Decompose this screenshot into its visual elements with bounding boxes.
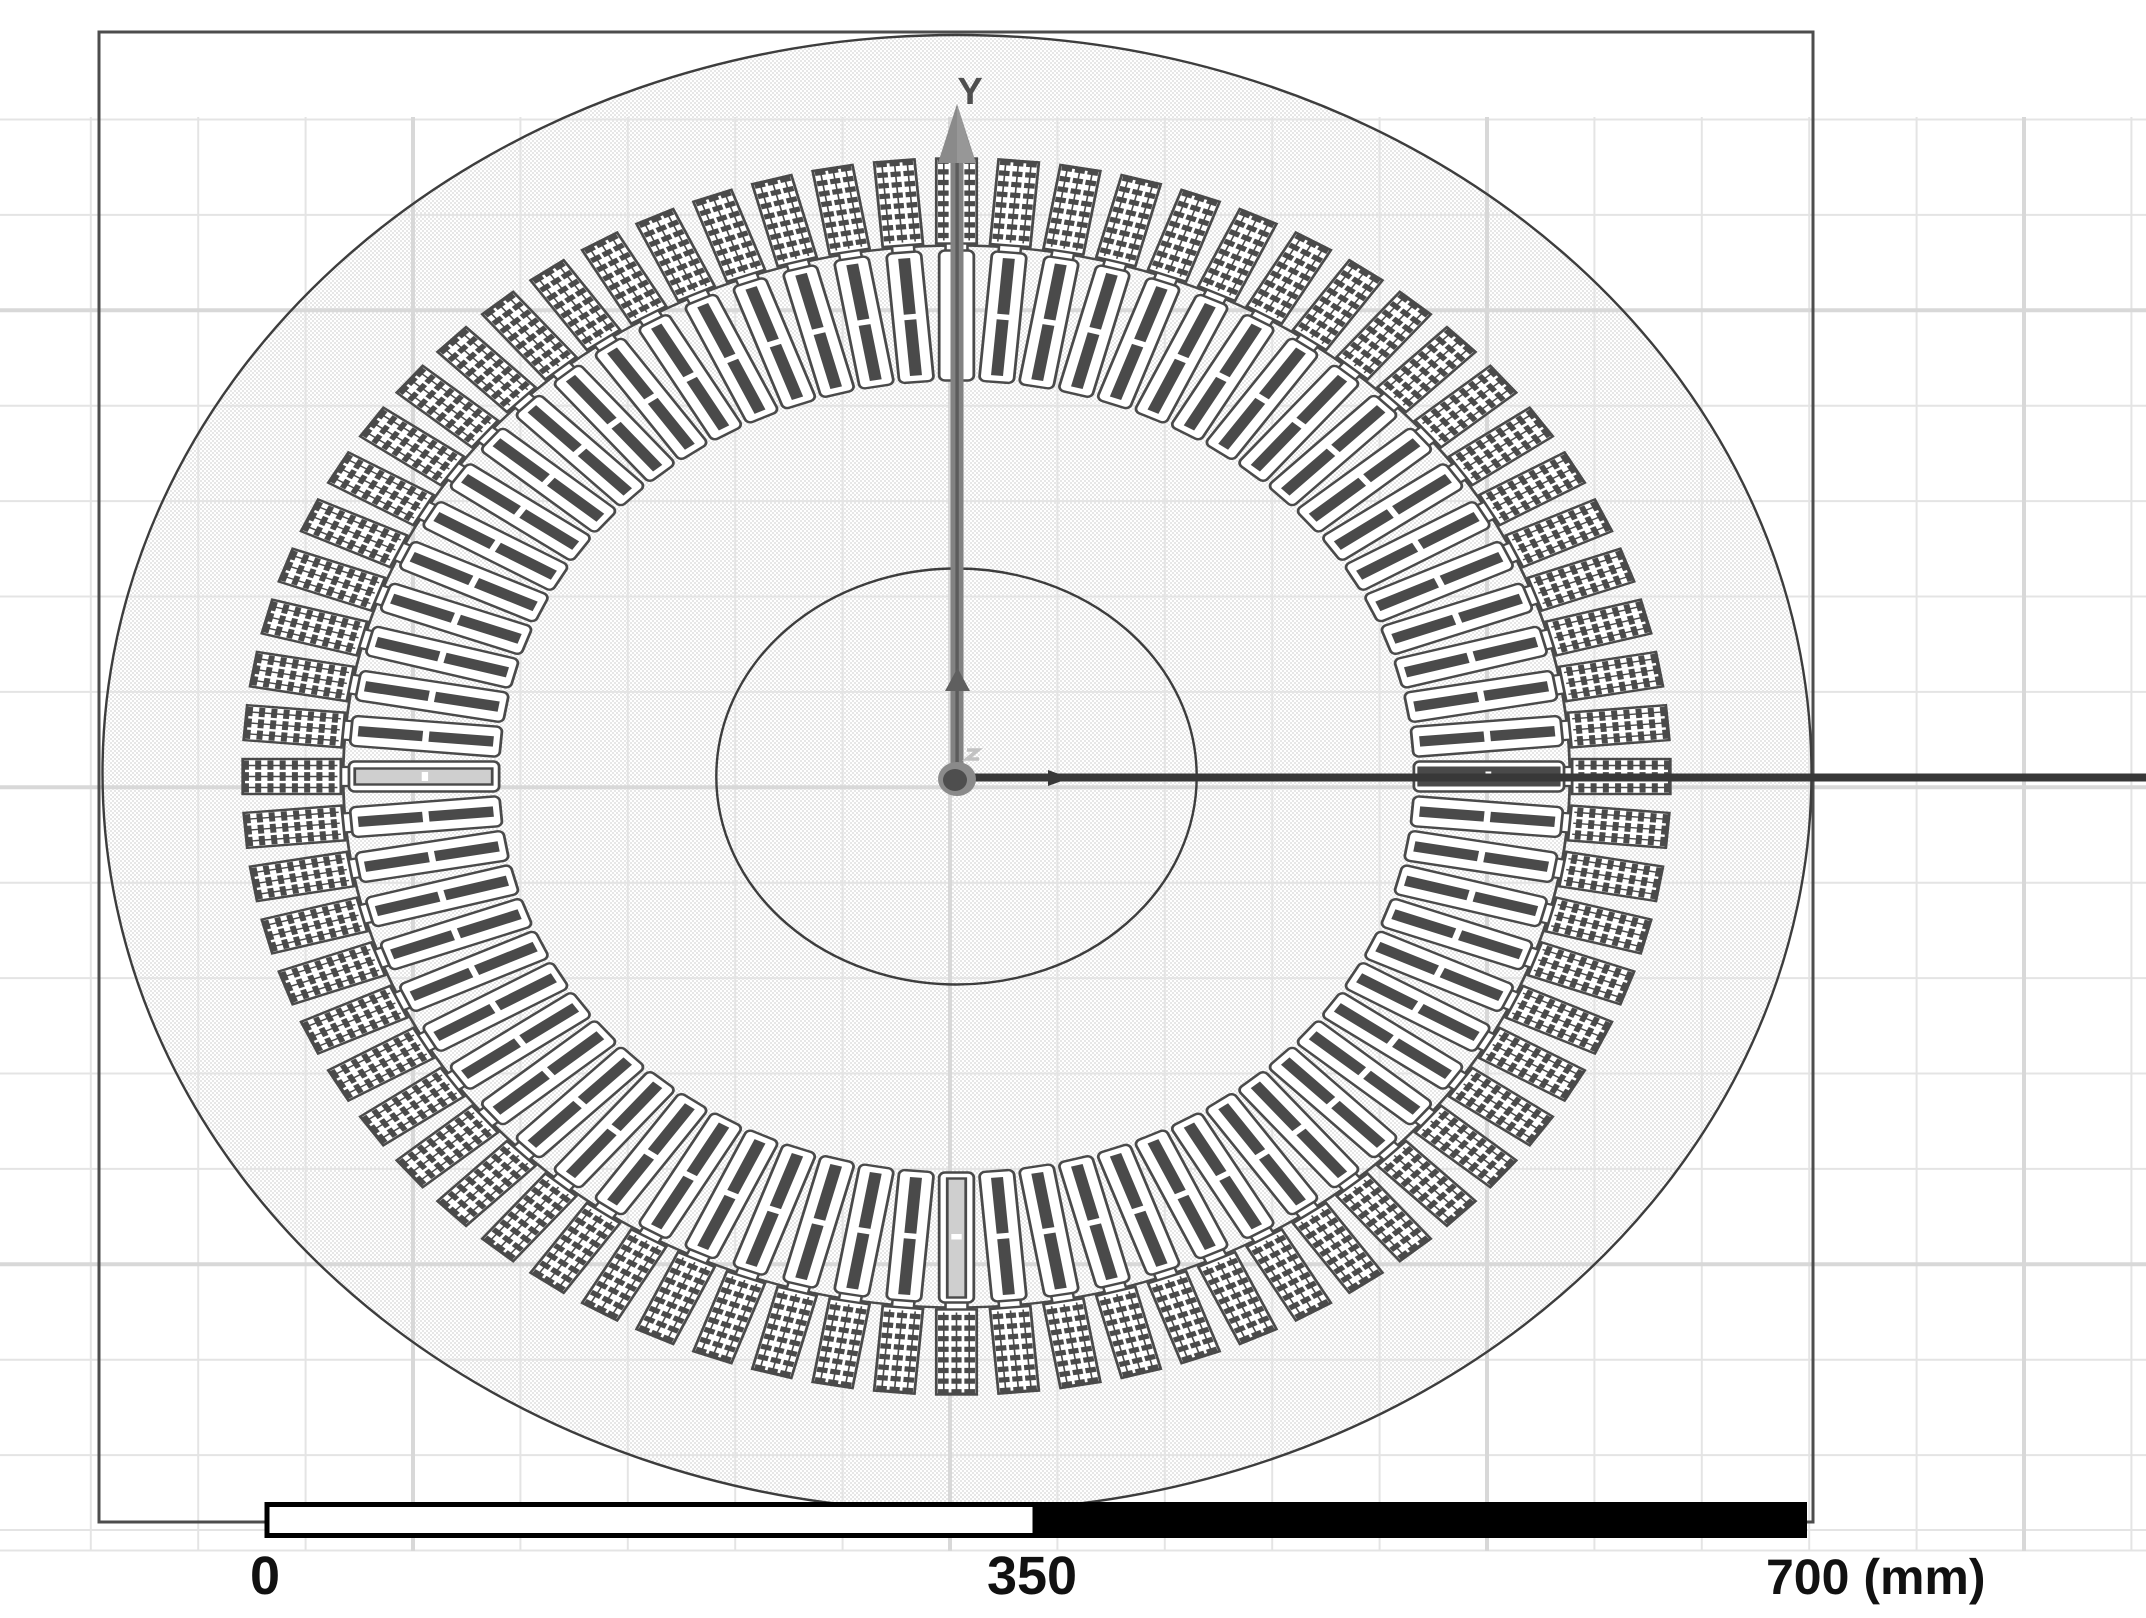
svg-text:350: 350 [987,1546,1077,1606]
svg-text:700 (mm): 700 (mm) [1766,1549,1986,1605]
svg-text:Y: Y [957,71,982,113]
svg-text:0: 0 [250,1546,280,1606]
